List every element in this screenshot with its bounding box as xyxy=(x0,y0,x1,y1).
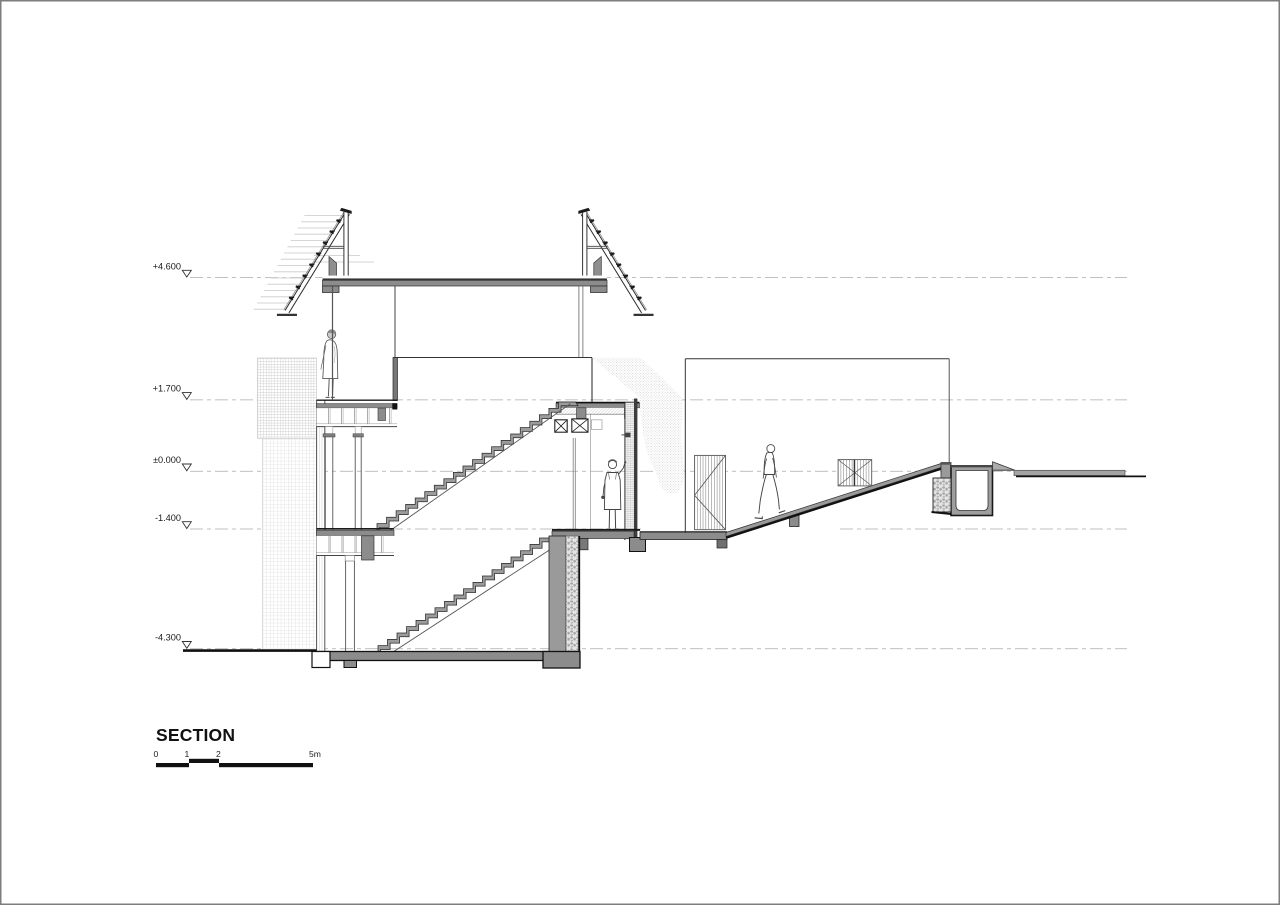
svg-text:-4.300: -4.300 xyxy=(155,633,181,643)
svg-text:1: 1 xyxy=(185,749,190,759)
svg-text:5m: 5m xyxy=(309,749,321,759)
svg-text:+1.700: +1.700 xyxy=(153,384,181,394)
svg-text:±0.000: ±0.000 xyxy=(153,455,181,465)
svg-text:SECTION: SECTION xyxy=(156,725,235,745)
svg-text:2: 2 xyxy=(216,749,221,759)
svg-text:0: 0 xyxy=(154,749,159,759)
svg-text:+4.600: +4.600 xyxy=(153,261,181,271)
svg-text:-1.400: -1.400 xyxy=(155,513,181,523)
